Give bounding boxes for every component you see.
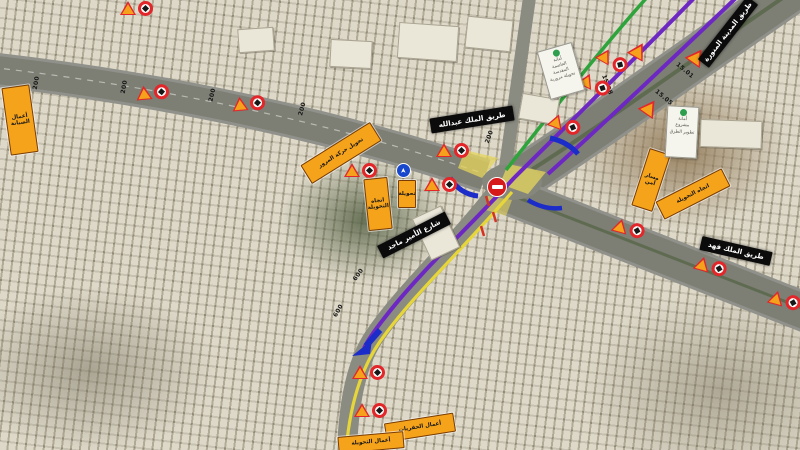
satellite-building bbox=[464, 16, 513, 53]
satellite-building bbox=[329, 39, 372, 69]
satellite-building bbox=[237, 27, 275, 53]
mandatory-direction-sign bbox=[396, 163, 411, 178]
satellite-building bbox=[397, 22, 459, 62]
no-entry-sign bbox=[487, 177, 507, 197]
satellite-building bbox=[700, 119, 763, 149]
traffic-diversion-satellite-map[interactable]: 20020020020020060060015.0115.0515.08 bbox=[0, 0, 800, 450]
roads-and-routes-overlay bbox=[0, 0, 800, 450]
